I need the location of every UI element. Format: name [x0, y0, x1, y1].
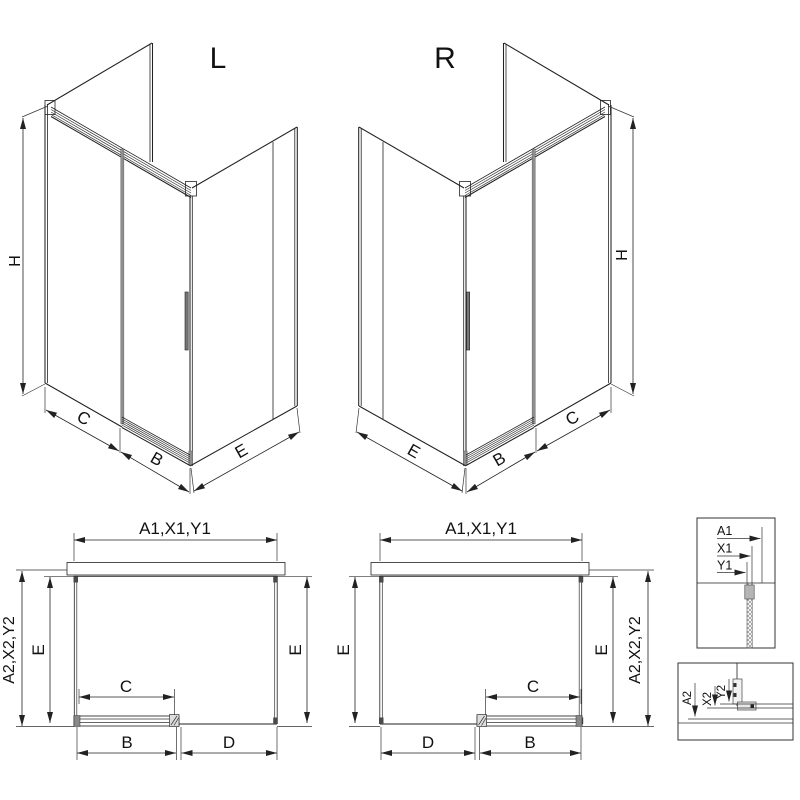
plan-l-dim-c: C — [120, 677, 132, 696]
plan-l-dim-b: B — [121, 733, 132, 752]
plan-r-dim-e-left: E — [334, 644, 353, 655]
iso-r-dim-h: H — [614, 249, 631, 261]
detail-w-label-y1: Y1 — [717, 559, 732, 573]
detail-w-label-a1: A1 — [717, 524, 732, 538]
iso-r-bottom-rail — [466, 383, 611, 466]
iso-l-sliding-door — [121, 149, 193, 466]
plan-l-dim-e-right: E — [286, 644, 305, 655]
plan-l-door-assembly — [74, 715, 179, 727]
iso-r-dimensions: H C B E — [356, 106, 634, 494]
iso-r-view-label: R — [434, 42, 456, 75]
iso-r-dim-b: B — [490, 448, 509, 470]
iso-r-sliding-door — [463, 149, 535, 466]
plan-r-dim-e-right: E — [592, 644, 611, 655]
iso-view-r: R — [356, 42, 634, 494]
plan-view-r: A1,X1,Y1 E — [334, 519, 654, 760]
plan-r-wall — [371, 563, 589, 576]
detail-d-label-a2: A2 — [682, 691, 694, 705]
iso-l-dim-h: H — [7, 255, 24, 267]
plan-l-wall — [67, 563, 285, 576]
plan-r-dim-b: B — [524, 733, 535, 752]
plan-view-l: A1,X1,Y1 A2,X2,Y2 — [1, 519, 312, 760]
iso-r-right-side-panel — [504, 43, 612, 383]
iso-r-door-handle — [467, 292, 470, 350]
plan-l-dim-e-left: E — [29, 644, 48, 655]
shower-enclosure-technical-drawing: L — [0, 0, 800, 800]
plan-r-door-assembly — [477, 715, 582, 727]
iso-l-dim-b: B — [147, 448, 166, 470]
plan-r-dim-a2: A2,X2,Y2 — [627, 616, 644, 684]
plan-l-enclosure — [74, 576, 278, 724]
detail-width-reference: A1 X1 Y1 — [697, 518, 775, 648]
plan-l-dim-d: D — [223, 733, 235, 752]
iso-l-dim-c: C — [74, 407, 94, 430]
detail-d-label-x2: X2 — [702, 692, 714, 706]
detail-w-label-x1: X1 — [717, 542, 732, 556]
plan-r-dim-d: D — [422, 733, 434, 752]
iso-l-dim-e: E — [232, 440, 251, 462]
iso-l-bottom-rail — [45, 383, 190, 466]
detail-d-label-y2: Y2 — [716, 685, 728, 699]
iso-r-dim-c: C — [562, 407, 582, 430]
plan-r-dim-a1: A1,X1,Y1 — [445, 519, 517, 538]
iso-l-view-label: L — [210, 42, 227, 75]
plan-l-dim-a1: A1,X1,Y1 — [139, 519, 211, 538]
iso-view-l: L — [7, 42, 300, 494]
plan-r-dim-c: C — [527, 677, 539, 696]
iso-l-door-handle — [185, 292, 188, 350]
plan-l-dimensions: A2,X2,Y2 E E C B D — [1, 570, 312, 760]
iso-r-left-side-panel — [359, 127, 466, 466]
iso-l-dimensions: H C B E — [7, 106, 300, 494]
plan-r-enclosure — [379, 576, 583, 724]
detail-depth-reference: A2 X2 Y2 — [678, 663, 793, 740]
plan-l-dim-a2: A2,X2,Y2 — [1, 616, 18, 684]
iso-r-dim-e: E — [404, 440, 423, 462]
iso-l-left-side-panel — [45, 43, 153, 383]
iso-l-right-side-panel — [190, 127, 297, 466]
